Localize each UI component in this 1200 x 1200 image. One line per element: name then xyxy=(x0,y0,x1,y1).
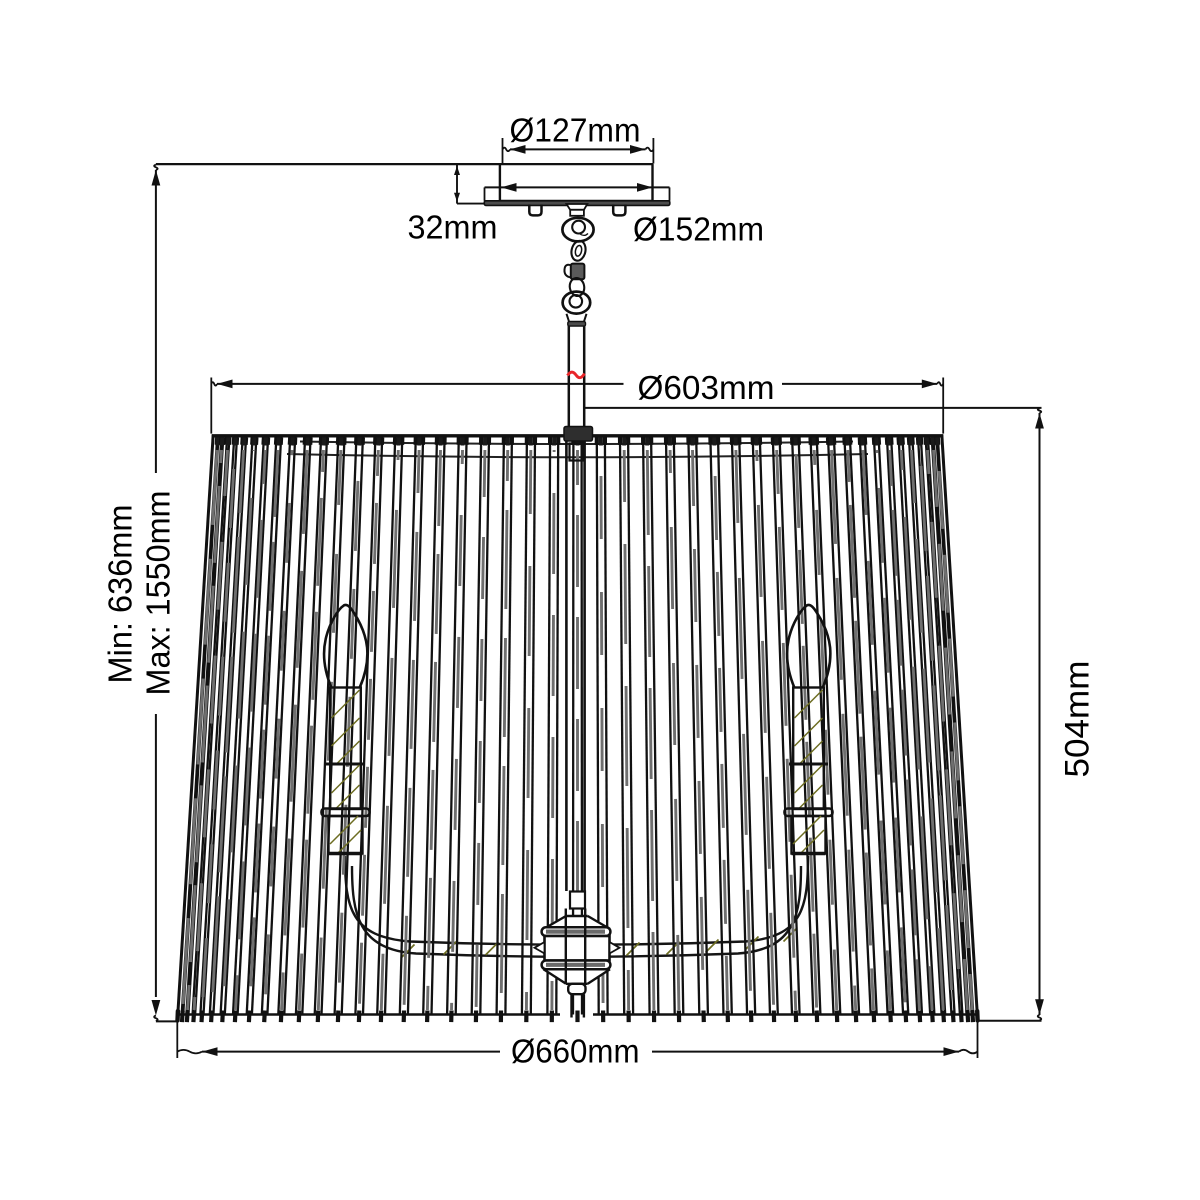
svg-text:Ø127mm: Ø127mm xyxy=(510,112,641,149)
svg-text:32mm: 32mm xyxy=(408,209,498,246)
svg-text:Ø603mm: Ø603mm xyxy=(638,369,775,406)
svg-text:Min: 636mm: Min: 636mm xyxy=(102,505,139,684)
svg-text:504mm: 504mm xyxy=(1059,661,1097,778)
svg-text:Ø660mm: Ø660mm xyxy=(511,1033,640,1070)
svg-text:Max: 1550mm: Max: 1550mm xyxy=(140,491,177,696)
svg-text:Ø152mm: Ø152mm xyxy=(633,211,764,248)
